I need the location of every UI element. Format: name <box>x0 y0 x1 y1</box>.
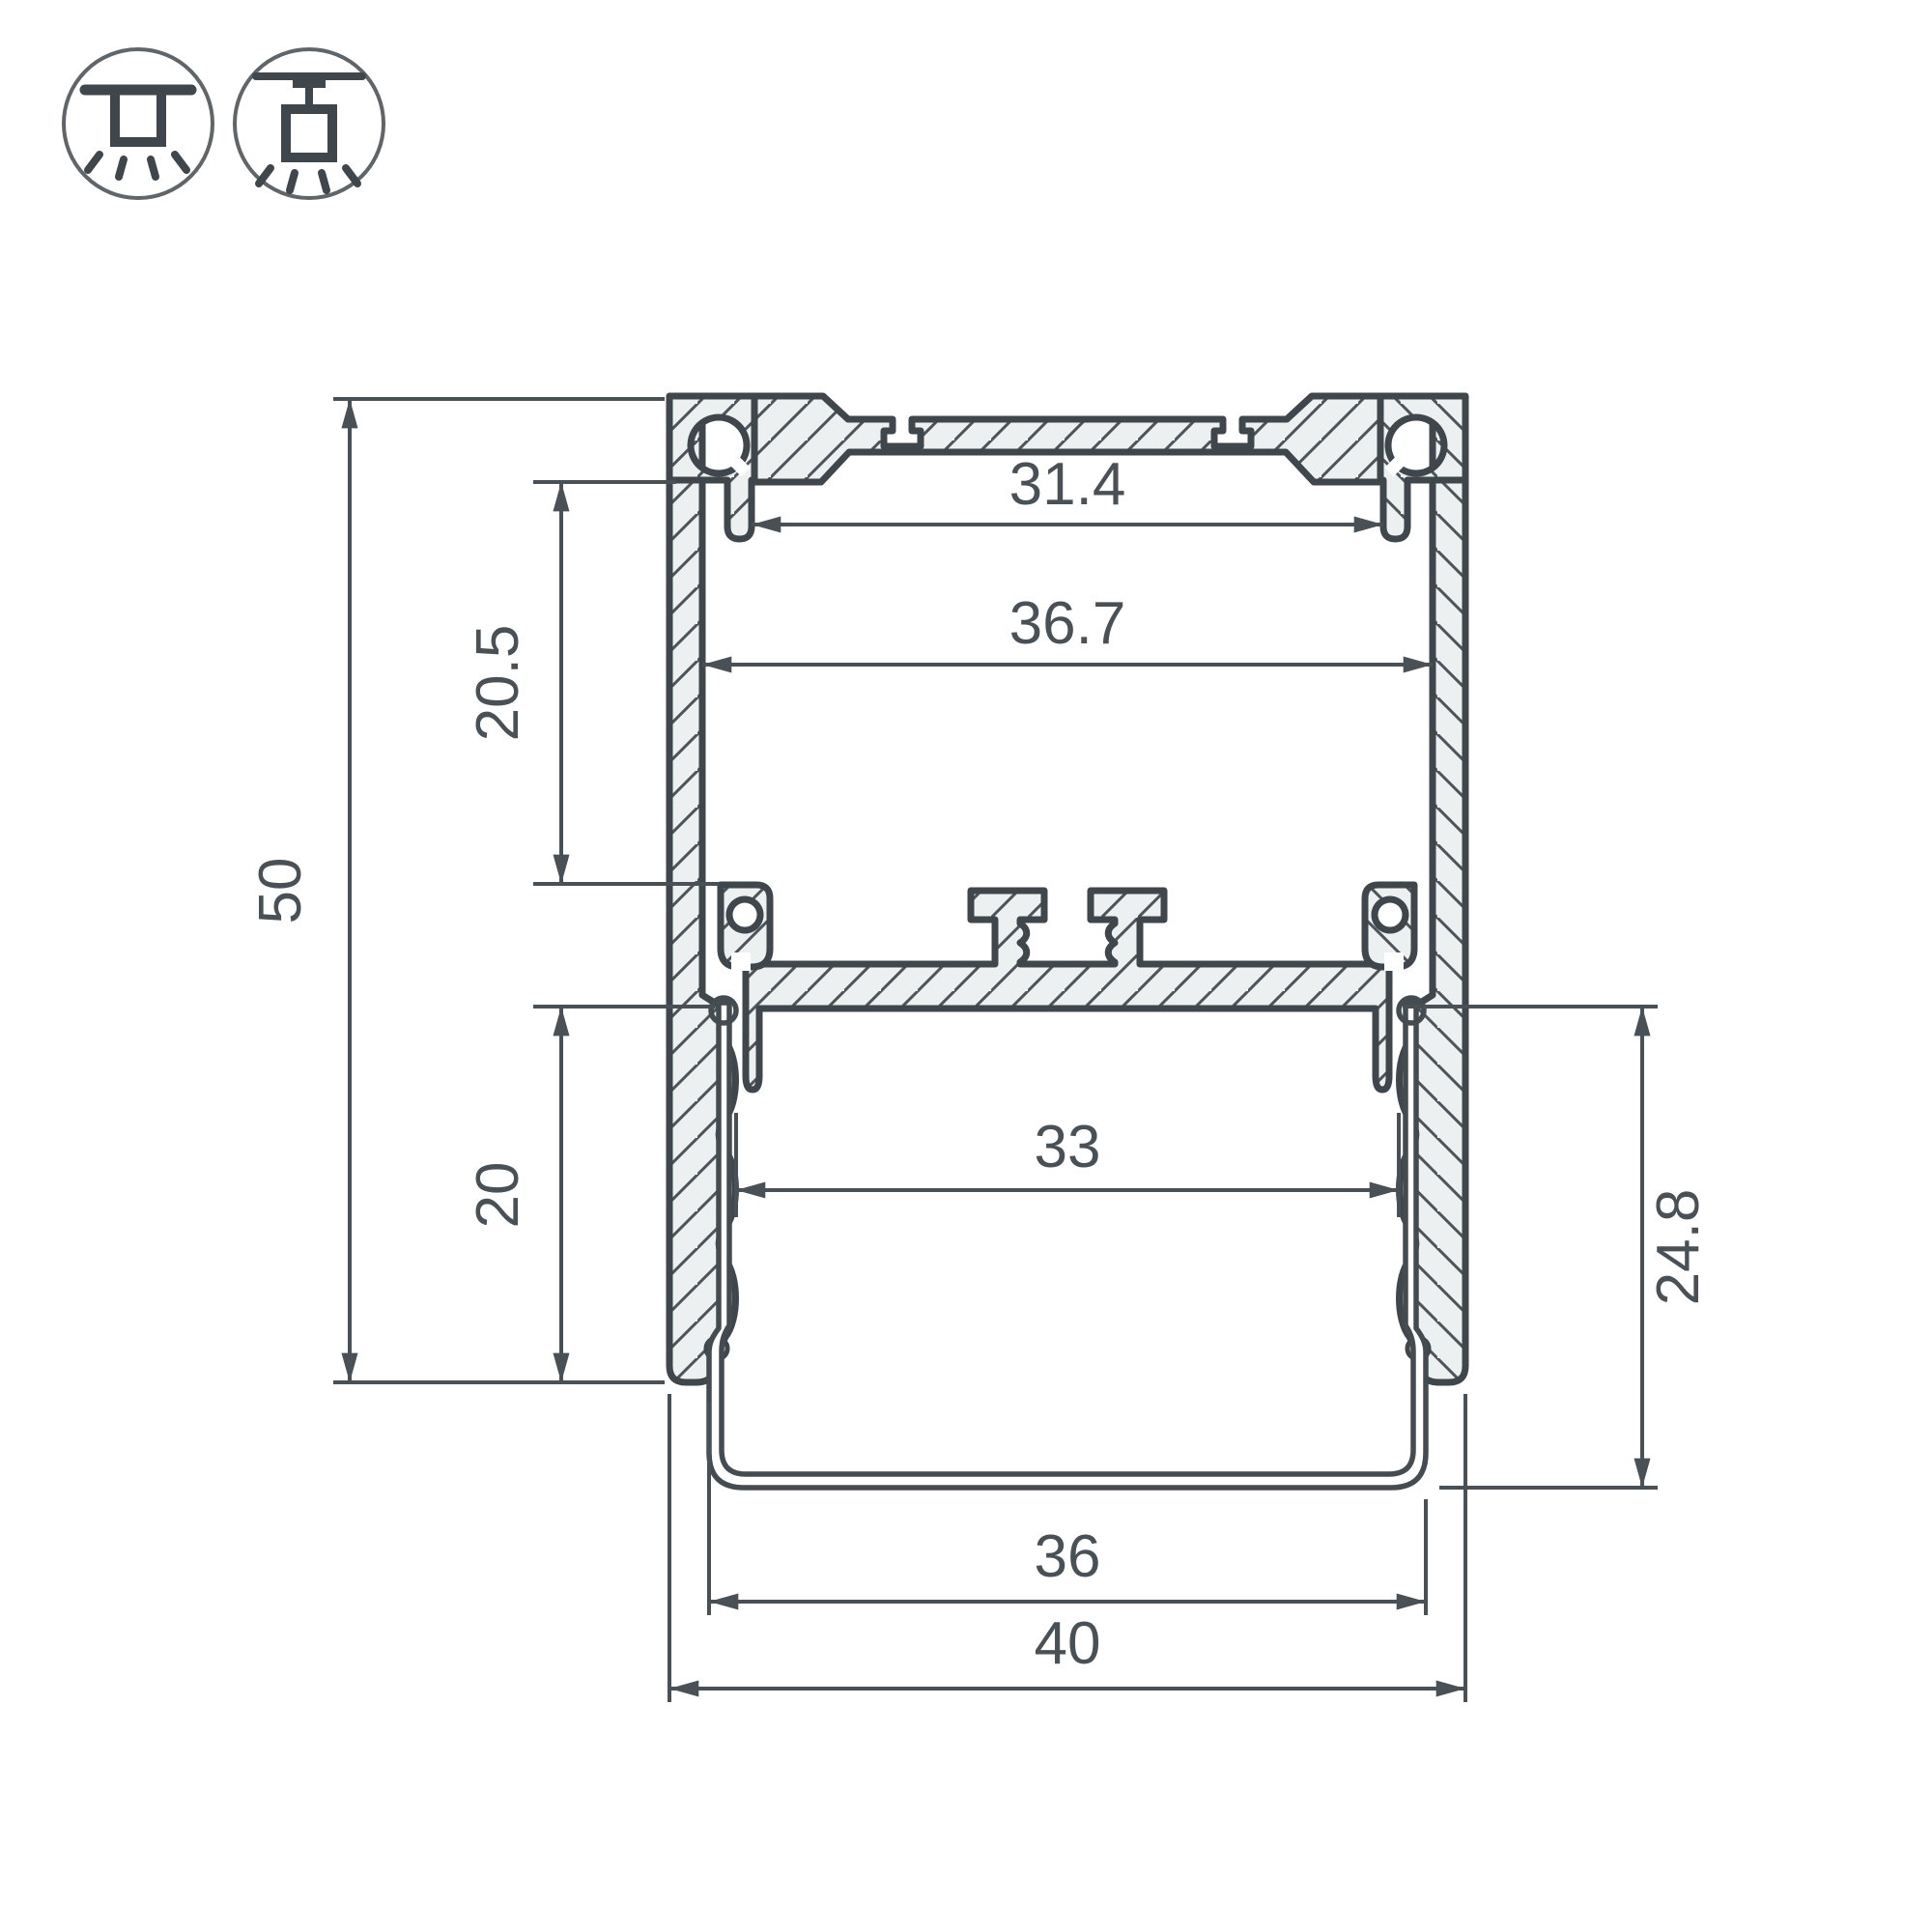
label-inner-width: 36.7 <box>1009 590 1126 657</box>
label-upper-height: 20.5 <box>465 625 531 742</box>
label-diffuser-depth: 24.8 <box>1645 1189 1712 1306</box>
label-top-opening: 31.4 <box>1009 451 1126 518</box>
channel-openings <box>725 451 1410 971</box>
light-rays-icon <box>88 155 186 177</box>
aluminium-profile <box>669 396 1465 1382</box>
diffuser-clip-pins <box>706 1338 1429 1359</box>
label-lower-height: 20 <box>465 1162 531 1229</box>
label-total-width: 40 <box>1035 1610 1101 1677</box>
drawing-canvas: 50 20.5 20 24.8 31.4 36.7 33 36 40 <box>0 0 1932 1932</box>
mount-icons <box>64 49 384 198</box>
label-shelf-width: 33 <box>1035 1114 1101 1180</box>
diffuser-body <box>709 1003 1426 1488</box>
pendant-mount-icon <box>235 49 384 198</box>
label-total-height: 50 <box>247 858 314 924</box>
surface-mount-icon <box>64 49 213 198</box>
diffuser <box>709 998 1426 1488</box>
profile-drawing-svg: 50 20.5 20 24.8 31.4 36.7 33 36 40 <box>0 0 1932 1932</box>
divider-plate <box>746 891 1389 1090</box>
label-diffuser-width: 36 <box>1035 1523 1101 1590</box>
dimension-labels: 50 20.5 20 24.8 31.4 36.7 33 36 40 <box>247 451 1712 1677</box>
